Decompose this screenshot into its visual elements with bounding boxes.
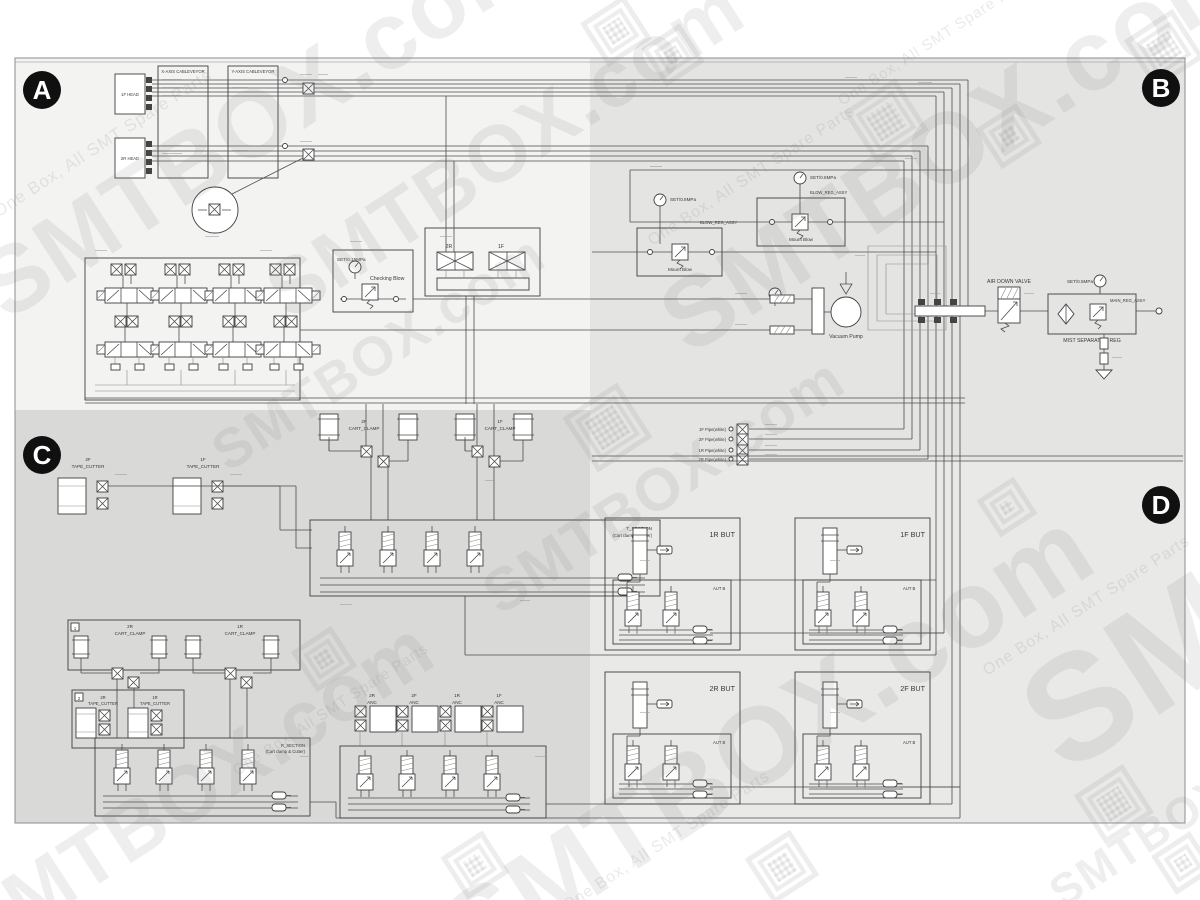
anc-2r-id: 2R <box>369 693 376 698</box>
but-1f-title: 1F BUT <box>900 530 925 539</box>
anc-1r-id: 1R <box>454 693 461 698</box>
mount-blow-left-assy: BLOW_REG_ASSY <box>700 220 737 225</box>
head-valve-2r-label: 2R <box>446 244 453 250</box>
cc2r-name: CART_CLAMP <box>115 631 146 636</box>
anc-2r-name: ANC <box>367 700 377 705</box>
cableveyor-y-label: Y-AXIS CABLEVEYOR <box>232 69 275 74</box>
quadrant-badge-a: A <box>23 71 61 109</box>
box1-num: 1 <box>74 626 77 631</box>
checking-blow-label: Checking Blow <box>370 276 405 282</box>
cc1f-id: 1F <box>497 419 503 424</box>
r-section-sub: (Cart clamp & Cutter) <box>265 749 305 754</box>
but-2r-title: 2R BUT <box>709 684 735 693</box>
but-2f-aut: AUT B <box>903 740 915 745</box>
anc-1r-name: ANC <box>452 700 462 705</box>
cc2r-id: 2R <box>127 624 134 629</box>
cc1r-name: CART_CLAMP <box>225 631 256 636</box>
main-assy-label: MAIN_REG_ASSY <box>1110 298 1146 303</box>
vacuum-pump-label: Vacuum Pump <box>829 334 863 340</box>
main-set-label: SET/0.5MPa <box>1067 279 1093 284</box>
mount-blow-right-assy: BLOW_REG_ASSY <box>810 190 847 195</box>
pipe-2f-label: 2F Pipe(white) <box>699 437 727 442</box>
tc1f-name: TAPE_CUTTER <box>187 464 221 469</box>
tc2f-id: 2F <box>85 457 91 462</box>
pneumatic-schematic: 1F HEAD 2R HEAD X-AXIS CABLEVEYOR Y-AXIS… <box>0 0 1200 900</box>
cableveyor-x-label: X-AXIS CABLEVEYOR <box>161 69 204 74</box>
cc1f-name: CART_CLAMP <box>485 426 516 431</box>
but-1f-aut: AUT B <box>903 586 915 591</box>
head-1f-label: 1F HEAD <box>121 92 139 97</box>
quadrant-badge-c: C <box>23 436 61 474</box>
quadrant-backgrounds <box>15 58 1185 823</box>
anc-1f-name: ANC <box>494 700 504 705</box>
checking-blow-set: SET/0.15MPa <box>337 257 366 262</box>
but-2r-aut: AUT B <box>713 740 725 745</box>
callout-detail <box>192 187 238 233</box>
quadrant-badge-b: B <box>1142 69 1180 107</box>
cc1r-id: 1R <box>237 624 244 629</box>
mount-blow-left-set: SET/0.8MPa <box>670 197 696 202</box>
cc2f-name: CART_CLAMP <box>349 426 380 431</box>
head-2r-label: 2R HEAD <box>121 156 139 161</box>
pipe-1r-label: 1R Pipe(white) <box>699 448 727 453</box>
mount-blow-right-label: Mount Blow <box>789 237 814 242</box>
quadrant-badge-d: D <box>1142 486 1180 524</box>
tc1f-id: 1F <box>200 457 206 462</box>
anc-2f-id: 2F <box>411 693 417 698</box>
tc2r-id: 2R <box>100 695 105 700</box>
but-1r-title: 1R BUT <box>709 530 735 539</box>
anc-2f-name: ANC <box>409 700 419 705</box>
mist-separator-label: MIST SEPARATOR REG <box>1063 338 1121 344</box>
but-2f-title: 2F BUT <box>900 684 925 693</box>
mount-blow-left-label: Mount Blow <box>668 267 693 272</box>
tc2f-name: TAPE_CUTTER <box>72 464 106 469</box>
pipe-1f-label: 1F Pipe(white) <box>699 427 727 432</box>
r-section-label: R_SECTION <box>281 743 305 748</box>
air-down-valve-label: AIR DOWN VALVE <box>987 279 1031 285</box>
head-valve-1f-label: 1F <box>498 244 504 250</box>
tc1r-name: TAPE_CUTTER <box>140 701 170 706</box>
but-1r-aut: AUT B <box>713 586 725 591</box>
anc-1f-id: 1F <box>496 693 502 698</box>
box2-num: 2 <box>78 696 81 701</box>
tc1r-id: 1R <box>152 695 157 700</box>
mount-blow-right-set: SET/0.8MPa <box>810 175 836 180</box>
tc2r-name: TAPE_CUTTER <box>88 701 118 706</box>
